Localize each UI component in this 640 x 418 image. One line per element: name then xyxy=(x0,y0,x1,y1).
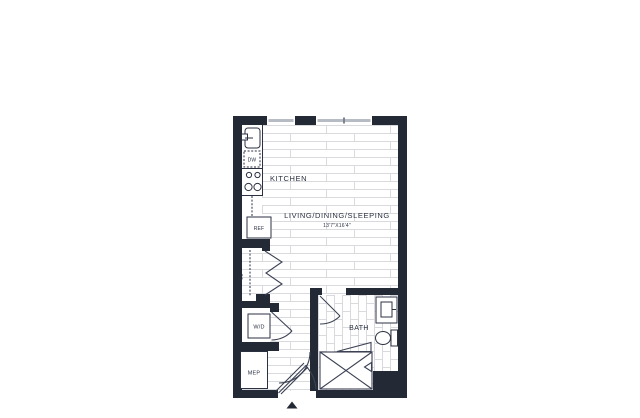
mep-label: MEP xyxy=(248,371,261,377)
laundry-label: W/D xyxy=(253,325,264,331)
living-dimensions: 13'7"X16'4" xyxy=(323,223,351,229)
refrigerator-icon: REF xyxy=(247,217,271,238)
vanity-sink-icon xyxy=(376,297,397,323)
dishwasher-label: DW xyxy=(248,158,257,164)
living-label: LIVING/DINING/SLEEPING xyxy=(284,211,390,220)
window-icon xyxy=(316,116,372,125)
shower-icon xyxy=(320,352,372,389)
window-icon xyxy=(267,116,295,125)
refrigerator-label: REF xyxy=(254,226,265,232)
entry-arrow-icon xyxy=(287,402,298,409)
bath-label: BATH xyxy=(349,325,369,332)
floor-plan: DW REF CL W/D MEP xyxy=(0,0,640,418)
kitchen-label: KITCHEN xyxy=(270,174,307,183)
closet-label: CL xyxy=(239,274,245,281)
toilet-icon xyxy=(376,330,398,346)
